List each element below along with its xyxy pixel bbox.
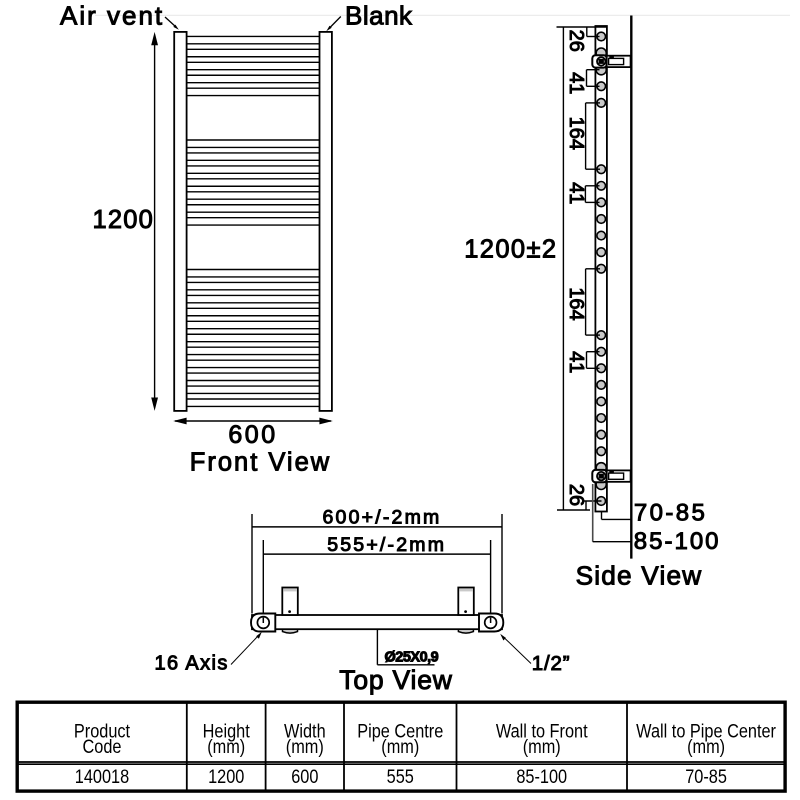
svg-text:(mm): (mm) — [381, 736, 419, 758]
svg-text:(mm): (mm) — [687, 736, 725, 758]
svg-text:(mm): (mm) — [207, 736, 245, 758]
svg-text:140018: 140018 — [75, 766, 129, 788]
svg-text:85-100: 85-100 — [516, 766, 567, 788]
svg-text:(mm): (mm) — [523, 736, 561, 758]
svg-text:555: 555 — [387, 766, 414, 788]
svg-text:(mm): (mm) — [286, 736, 324, 758]
svg-text:Code: Code — [83, 736, 122, 758]
svg-text:600: 600 — [291, 766, 318, 788]
svg-text:70-85: 70-85 — [685, 766, 727, 788]
svg-text:1200: 1200 — [208, 766, 244, 788]
